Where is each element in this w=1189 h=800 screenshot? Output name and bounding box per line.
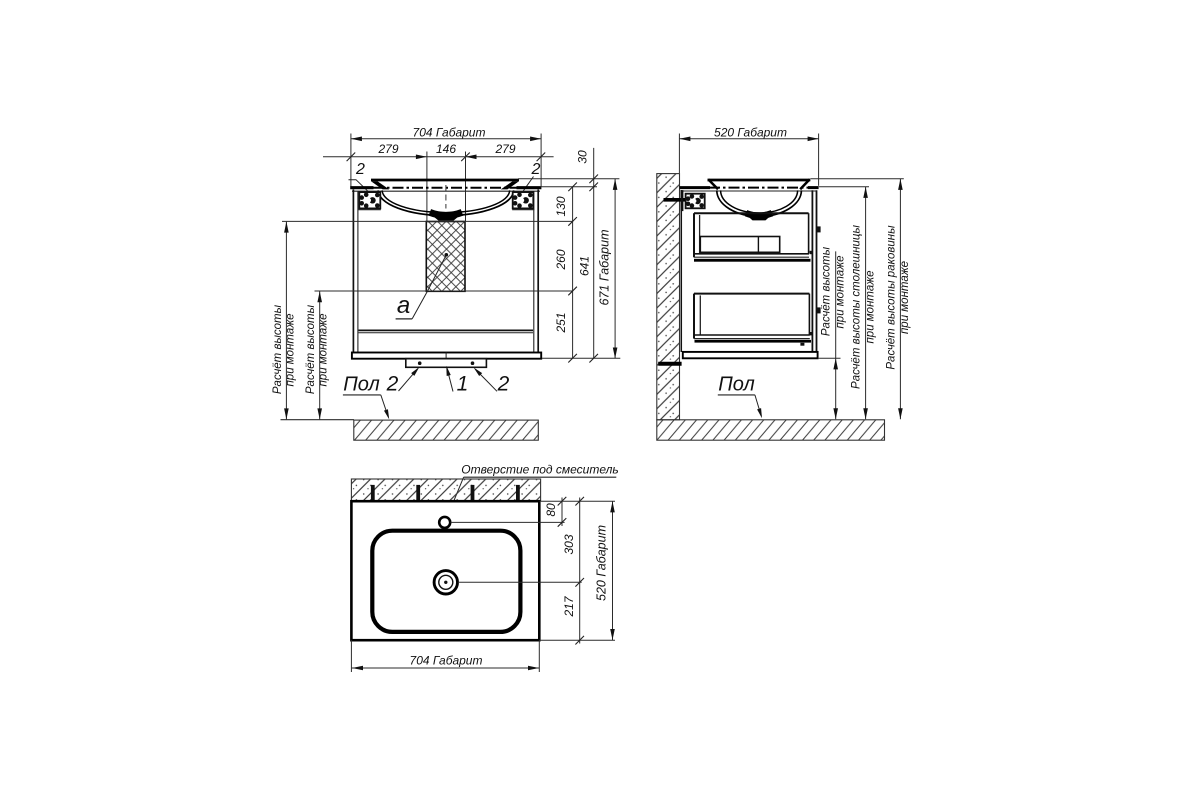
svg-text:260: 260 xyxy=(554,249,568,270)
svg-text:Расчёт высоты: Расчёт высоты xyxy=(272,304,284,394)
svg-text:80: 80 xyxy=(544,503,558,517)
svg-text:при монтаже: при монтаже xyxy=(318,313,330,386)
svg-text:217: 217 xyxy=(562,595,576,617)
svg-text:520 Габарит: 520 Габарит xyxy=(714,126,787,140)
svg-text:130: 130 xyxy=(554,196,568,216)
svg-text:Расчёт высоты столешницы: Расчёт высоты столешницы xyxy=(851,224,863,388)
svg-text:Расчёт высоты: Расчёт высоты xyxy=(305,304,317,394)
svg-text:Пол: Пол xyxy=(343,374,379,396)
svg-text:Отверстие под смеситель: Отверстие под смеситель xyxy=(461,463,618,477)
svg-text:303: 303 xyxy=(562,534,576,554)
svg-text:671 Габарит: 671 Габарит xyxy=(598,230,612,306)
svg-text:Расчёт высоты раковины: Расчёт высоты раковины xyxy=(885,225,897,370)
svg-text:Расчёт высоты: Расчёт высоты xyxy=(821,246,833,336)
svg-text:30: 30 xyxy=(575,150,589,164)
svg-text:704 Габарит: 704 Габарит xyxy=(413,126,486,140)
svg-text:520 Габарит: 520 Габарит xyxy=(594,525,608,601)
svg-text:704 Габарит: 704 Габарит xyxy=(410,654,483,668)
svg-text:146: 146 xyxy=(436,142,456,156)
svg-text:при монтаже: при монтаже xyxy=(864,270,876,343)
svg-text:279: 279 xyxy=(494,142,515,156)
svg-text:279: 279 xyxy=(377,142,398,156)
svg-text:при монтаже: при монтаже xyxy=(899,261,911,334)
svg-text:a: a xyxy=(397,292,410,319)
svg-text:2: 2 xyxy=(386,373,399,396)
svg-text:2: 2 xyxy=(497,373,510,396)
svg-text:1: 1 xyxy=(457,373,469,396)
svg-text:641: 641 xyxy=(577,256,591,276)
svg-text:Пол: Пол xyxy=(718,374,754,396)
svg-text:2: 2 xyxy=(355,161,365,178)
svg-text:при монтаже: при монтаже xyxy=(834,255,846,328)
svg-text:2: 2 xyxy=(531,161,541,178)
svg-text:при монтаже: при монтаже xyxy=(284,313,296,386)
svg-text:251: 251 xyxy=(554,312,568,333)
